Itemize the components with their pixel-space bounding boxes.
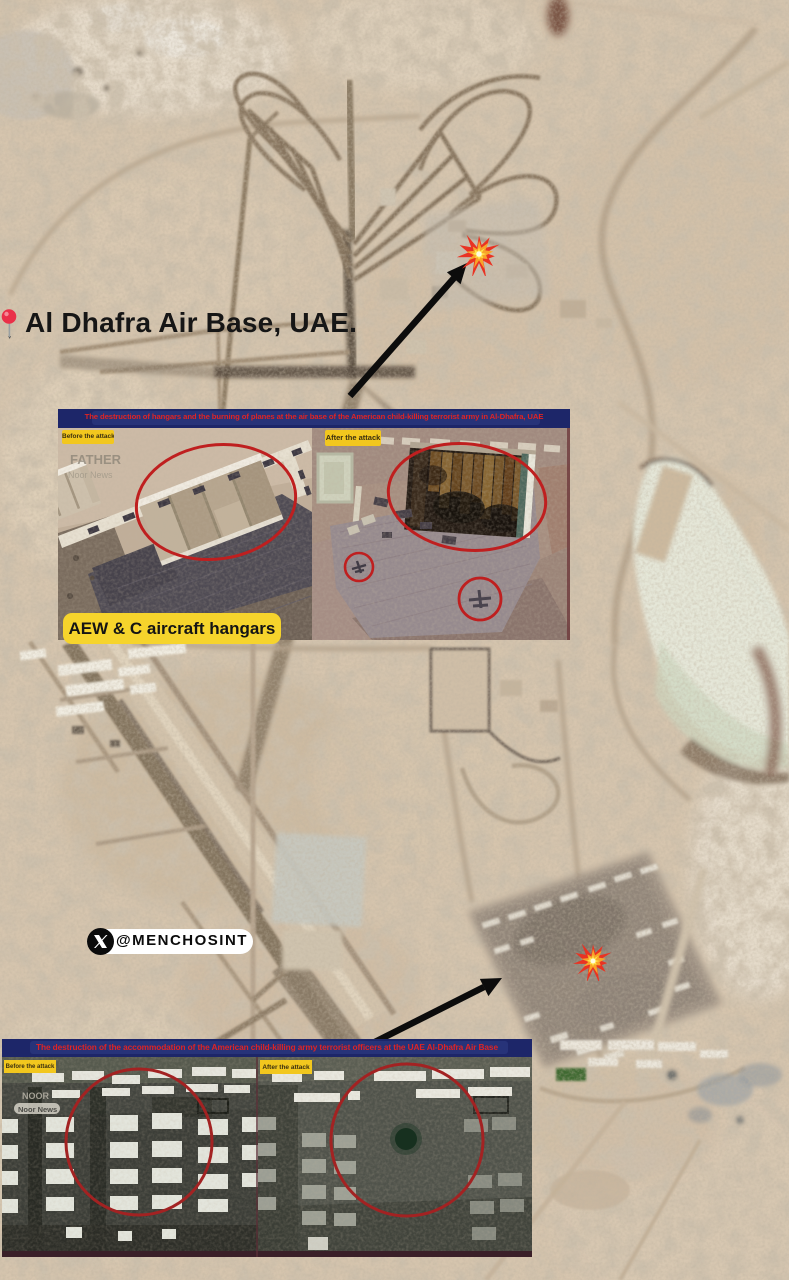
svg-text:NOOR: NOOR	[22, 1091, 50, 1101]
svg-text:Noor News: Noor News	[18, 1105, 57, 1114]
svg-text:Noor News: Noor News	[68, 470, 113, 480]
svg-text:FATHER: FATHER	[70, 452, 122, 467]
